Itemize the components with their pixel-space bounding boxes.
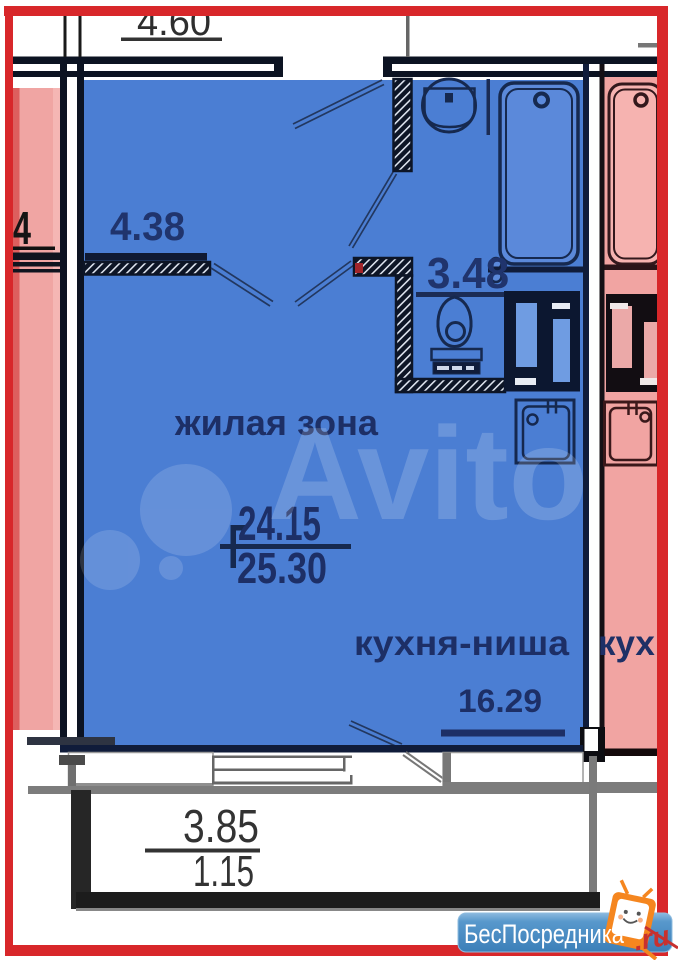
svg-text:1.15: 1.15 — [193, 847, 254, 896]
svg-text:3.85: 3.85 — [183, 800, 259, 852]
svg-text:16.29: 16.29 — [458, 683, 542, 719]
svg-text:.ru: .ru — [631, 920, 672, 957]
svg-text:БесПосредника: БесПосредника — [464, 919, 625, 949]
svg-text:25.30: 25.30 — [237, 544, 327, 593]
svg-text:Avito: Avito — [268, 400, 588, 547]
svg-text:3.48: 3.48 — [427, 249, 509, 298]
svg-text:4.38: 4.38 — [110, 205, 185, 249]
svg-text:кухня-ниша: кухня-ниша — [354, 624, 570, 663]
svg-text:4: 4 — [13, 202, 31, 254]
